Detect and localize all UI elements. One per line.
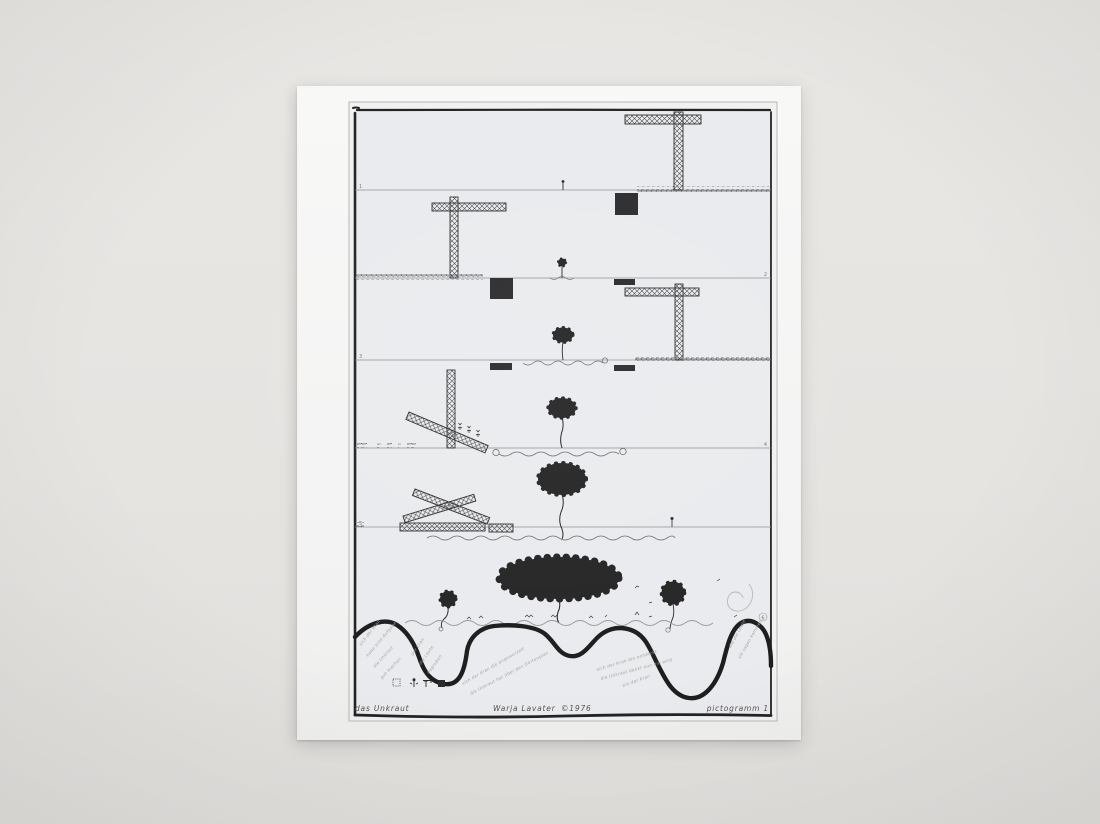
crowd-strip-band2-left xyxy=(355,274,483,280)
print-sheet: 1 2 3 4 5 6 xyxy=(297,86,801,740)
title-caption: das Unkraut xyxy=(355,704,410,713)
crowd-group-band5 xyxy=(355,522,364,527)
bar-band3-right xyxy=(614,365,635,371)
series-caption: pictogramm 1 xyxy=(706,704,769,713)
bar-band2-right xyxy=(614,279,635,285)
crowd-group-band4-b xyxy=(377,444,381,449)
crowd-group-band4-c xyxy=(387,443,392,448)
panel-number-3: 3 xyxy=(359,354,362,360)
crowd-group-band4-d xyxy=(398,444,401,449)
pictogram-artwork: 1 2 3 4 5 6 xyxy=(297,86,801,740)
legend-building-block-icon xyxy=(438,680,445,687)
block-band1 xyxy=(615,193,638,215)
photo-background: 1 2 3 4 5 6 xyxy=(0,0,1100,824)
copyright-caption: ©1976 xyxy=(561,704,592,713)
crowd-group-band4-a xyxy=(357,443,367,448)
crowd-strip-band3-right xyxy=(635,356,771,362)
crowd-strip-band1-right xyxy=(637,186,771,192)
panel-number-1: 1 xyxy=(359,184,362,190)
artist-caption: Warja Lavater xyxy=(493,704,556,713)
panel-number-4: 4 xyxy=(764,442,767,448)
panel-number-2: 2 xyxy=(764,272,767,278)
block-band2 xyxy=(490,278,513,299)
crowd-group-band4-e xyxy=(407,443,416,448)
bar-band3-left xyxy=(490,363,512,370)
